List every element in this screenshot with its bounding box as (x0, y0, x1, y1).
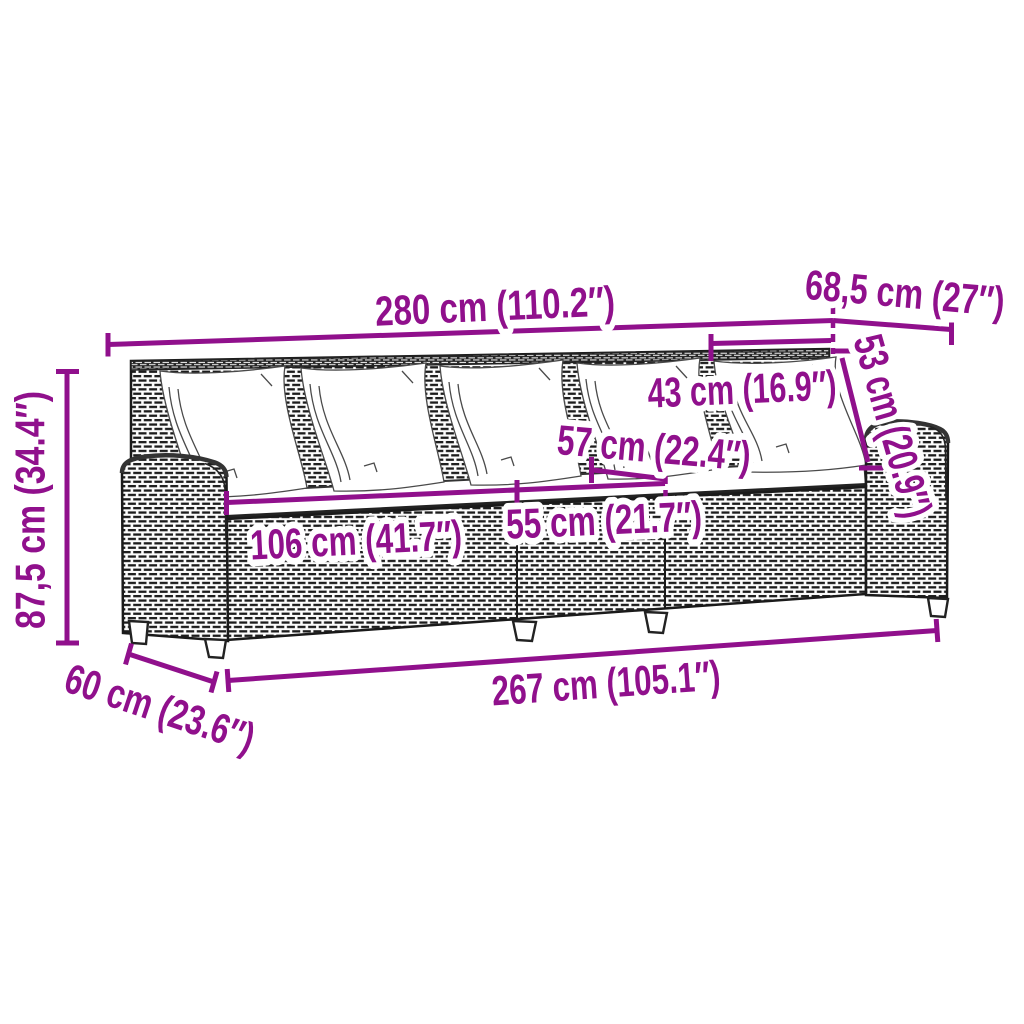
svg-text:87,5 cm (34.4″): 87,5 cm (34.4″) (7, 391, 54, 629)
svg-text:55 cm (21.7″): 55 cm (21.7″) (505, 492, 703, 548)
svg-text:43 cm (16.9″): 43 cm (16.9″) (647, 361, 838, 416)
